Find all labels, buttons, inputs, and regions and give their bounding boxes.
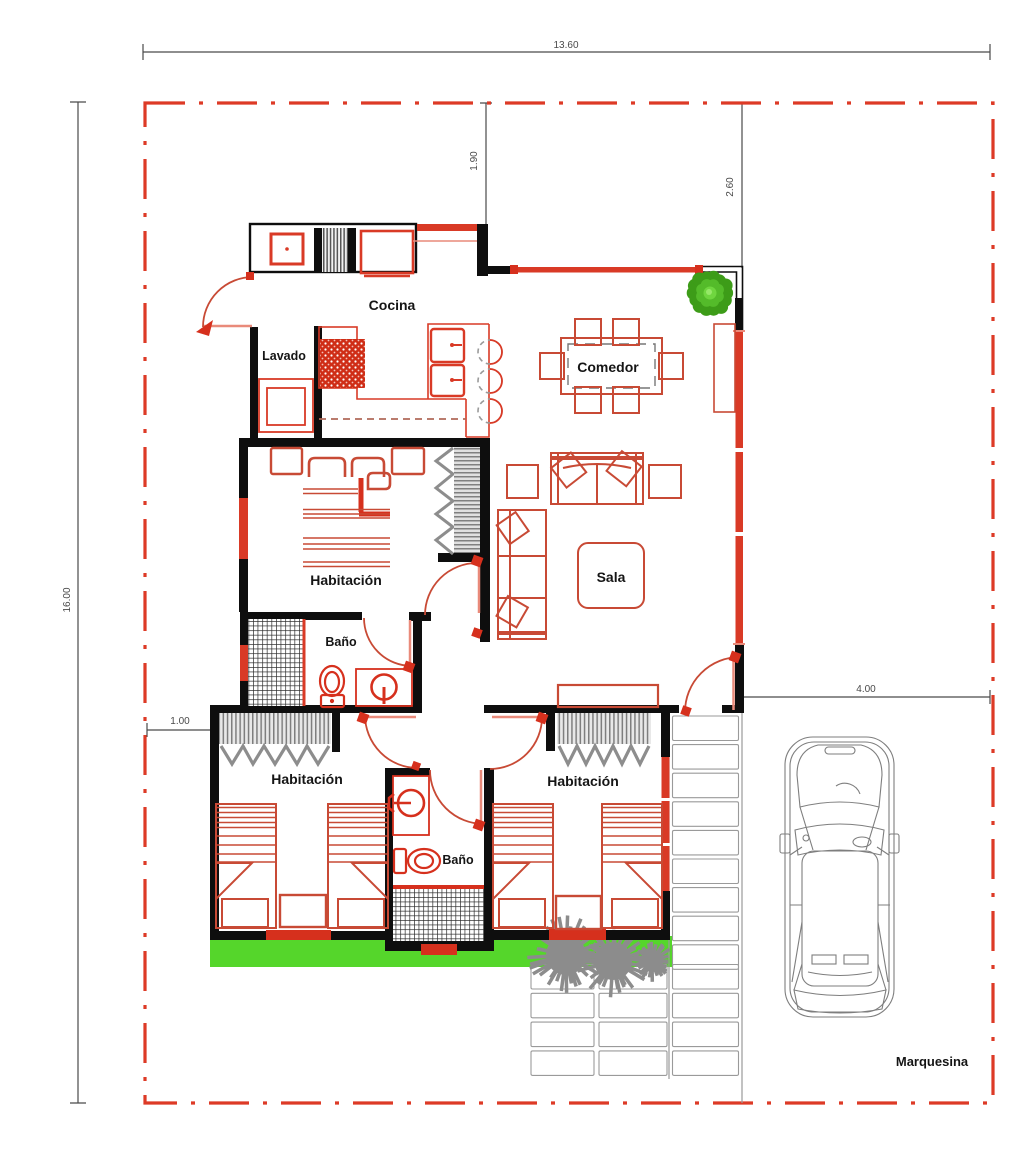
svg-text:Habitación: Habitación xyxy=(310,572,382,588)
svg-text:Cocina: Cocina xyxy=(369,297,416,313)
svg-text:16.00: 16.00 xyxy=(62,587,73,612)
svg-text:Lavado: Lavado xyxy=(262,349,306,363)
svg-text:Habitación: Habitación xyxy=(547,773,619,789)
svg-text:Baño: Baño xyxy=(325,635,357,649)
svg-text:Baño: Baño xyxy=(442,853,474,867)
svg-text:Sala: Sala xyxy=(597,569,626,585)
svg-text:Comedor: Comedor xyxy=(577,359,639,375)
svg-text:1.00: 1.00 xyxy=(170,716,190,727)
svg-text:Habitación: Habitación xyxy=(271,771,343,787)
svg-text:1.90: 1.90 xyxy=(469,151,480,171)
svg-text:Marquesina: Marquesina xyxy=(896,1054,969,1069)
svg-text:4.00: 4.00 xyxy=(856,684,876,695)
svg-text:2.60: 2.60 xyxy=(725,177,736,197)
svg-text:13.60: 13.60 xyxy=(553,40,578,51)
